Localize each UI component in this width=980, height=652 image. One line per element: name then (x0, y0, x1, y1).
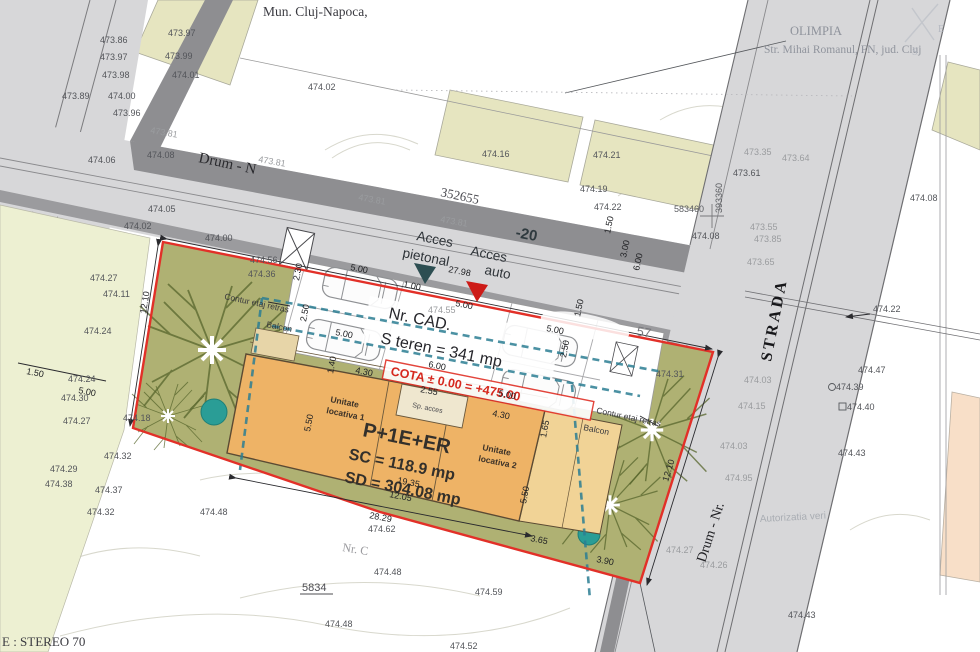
spot-elevation: 473.35 (744, 147, 772, 157)
coord-system-label: E : STEREO 70 (2, 634, 85, 649)
spot-elevation: 474.22 (873, 304, 901, 314)
site-plan-canvas: Mun. Cluj-Napoca, OLIMPIA Str. Mihai Rom… (0, 0, 980, 652)
spot-elevation: 474.55 (428, 305, 456, 315)
spot-elevation: 473.89 (62, 91, 90, 101)
coord-x-label: 583460 (674, 204, 704, 214)
spot-elevation: 474.27 (90, 273, 118, 283)
spot-elevation: 474.08 (692, 231, 720, 241)
site-name-label: OLIMPIA (790, 24, 842, 38)
spot-elevation: 473.97 (100, 52, 128, 62)
spot-elevation: 474.08 (910, 193, 938, 203)
spot-elevation: 474.02 (308, 82, 336, 92)
parcel-top-right (932, 62, 980, 150)
spot-elevation: 474.43 (838, 448, 866, 458)
spot-elevation: 474.16 (482, 149, 510, 159)
spot-elevation: 473.96 (113, 108, 141, 118)
spot-elevation: 474.43 (788, 610, 816, 620)
spot-elevation: 474.39 (836, 382, 864, 392)
compass-s-label: S (912, 47, 918, 58)
spot-elevation: 474.32 (104, 451, 132, 461)
spot-elevation: 473.61 (733, 168, 761, 178)
spot-elevation: 473.65 (747, 257, 775, 267)
spot-elevation: 473.55 (750, 222, 778, 232)
spot-elevation: 474.36 (248, 269, 276, 279)
spot-elevation: 473.64 (782, 153, 810, 163)
parcel-top-1 (435, 90, 583, 182)
cad-suffix: 57 (635, 323, 652, 341)
spot-elevation: 474.37 (95, 485, 123, 495)
dimension-label: 12.10 (138, 290, 151, 314)
spot-elevation: 474.01 (172, 70, 200, 80)
site-plan: Mun. Cluj-Napoca, OLIMPIA Str. Mihai Rom… (0, 0, 980, 652)
spot-elevation: 474.27 (63, 416, 91, 426)
spot-elevation: 474.56 (250, 255, 278, 265)
spot-elevation: 474.08 (147, 150, 175, 160)
spot-elevation: 474.47 (858, 365, 886, 375)
spot-elevation: 474.00 (108, 91, 136, 101)
spot-elevation: 474.95 (725, 473, 753, 483)
spot-elevation: 474.32 (87, 507, 115, 517)
pale-strip (0, 205, 150, 652)
spot-elevation: 474.62 (368, 524, 396, 534)
spot-elevation: 474.31 (656, 369, 684, 379)
spot-elevation: 474.40 (847, 402, 875, 412)
spot-elevation: 474.27 (666, 545, 694, 555)
spot-elevation: 474.38 (45, 479, 73, 489)
spot-elevation: 474.48 (374, 567, 402, 577)
spot-elevation: 474.59 (475, 587, 503, 597)
spot-elevation: 474.48 (325, 619, 353, 629)
spot-elevation: 474.24 (84, 326, 112, 336)
spot-elevation: 473.86 (100, 35, 128, 45)
spot-elevation: 474.00 (205, 233, 233, 243)
compass-e-label: E (938, 24, 944, 35)
spot-elevation: 474.03 (720, 441, 748, 451)
municipality-label: Mun. Cluj-Napoca, (263, 4, 368, 19)
spot-elevation: 474.52 (450, 641, 478, 651)
coord-y-label: 393360 (714, 183, 724, 213)
bush (201, 399, 227, 425)
spot-elevation: 474.26 (700, 560, 728, 570)
spot-elevation: 474.48 (200, 507, 228, 517)
spot-elevation: 474.03 (744, 375, 772, 385)
spot-elevation: 474.02 (124, 221, 152, 231)
spot-elevation: 474.22 (594, 202, 622, 212)
spot-elevation: 473.97 (168, 28, 196, 38)
parcel-number-label: 5834 (302, 582, 326, 594)
spot-elevation: 474.06 (88, 155, 116, 165)
spot-elevation: 473.98 (102, 70, 130, 80)
nr-c-label: Nr. C (342, 540, 370, 558)
spot-elevation: 473.85 (754, 234, 782, 244)
spot-elevation: 474.19 (580, 184, 608, 194)
spot-elevation: 474.05 (148, 204, 176, 214)
spot-elevation: 474.18 (123, 413, 151, 423)
spot-elevation: 473.99 (165, 51, 193, 61)
site-address-label: Str. Mihai Romanul, FN, jud. Cluj (764, 44, 922, 56)
spot-elevation: 474.29 (50, 464, 78, 474)
spot-elevation: 474.11 (103, 289, 130, 299)
spot-elevation: 474.15 (738, 401, 766, 411)
spot-elevation: 474.24 (68, 374, 96, 384)
spot-elevation: 474.21 (593, 150, 621, 160)
